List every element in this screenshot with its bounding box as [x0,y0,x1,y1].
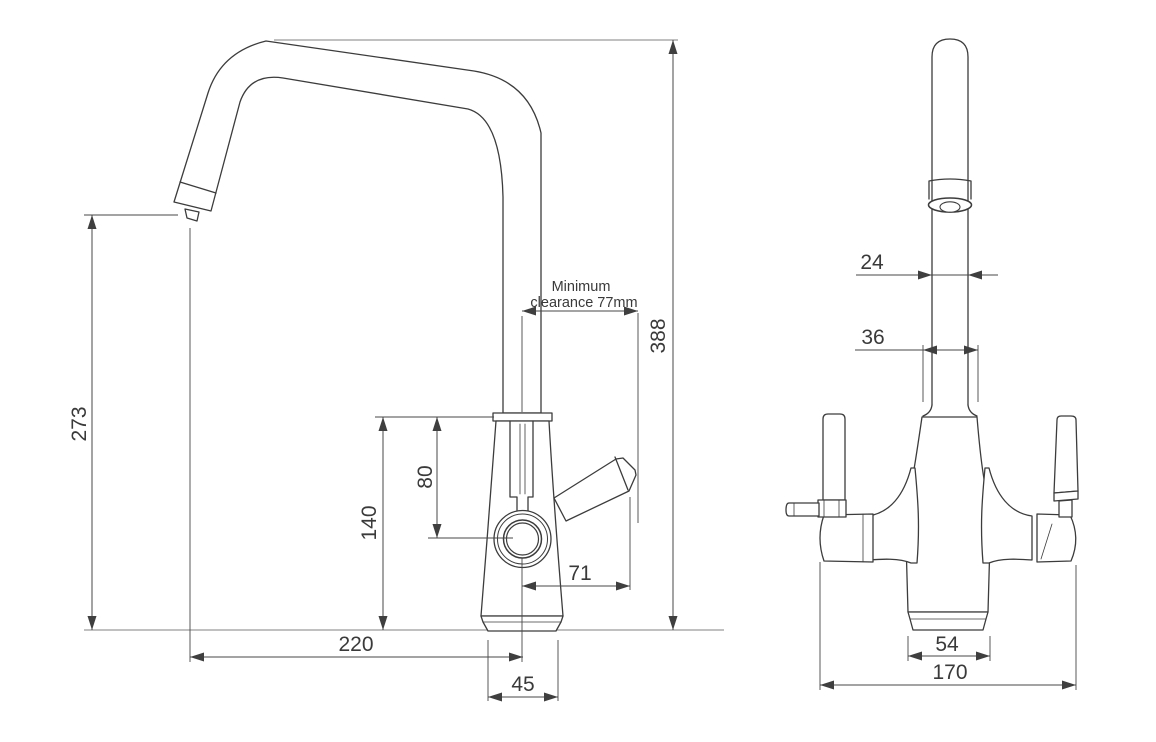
dial-outer-ring [494,511,551,568]
dim-54-label: 54 [935,633,959,656]
front-spout-flare [923,405,977,416]
front-left-arm [868,468,918,563]
dim-220-label: 220 [338,633,373,656]
front-left-valve-block [820,514,873,562]
technical-drawing: 273 388 Minimum clearance 77mm 140 [0,0,1156,742]
dim-45: 45 [488,640,558,702]
front-aerator-nozzle [940,202,960,212]
clearance-note-line1: Minimum [552,279,611,295]
clearance-note-line2: clearance 77mm [530,295,637,311]
front-right-stem [1059,500,1072,517]
dim-388-label: 388 [647,318,670,353]
front-view: 24 36 54 170 [786,39,1078,690]
dim-24: 24 [856,251,998,280]
spout-nozzle [185,209,199,221]
dim-273-label: 273 [68,406,91,441]
dim-80-label: 80 [414,465,437,488]
dim-140: 140 [358,417,494,630]
dim-220: 220 [190,633,523,662]
dim-45-label: 45 [511,673,534,696]
dim-36: 36 [855,326,978,402]
dim-36-label: 36 [861,326,884,349]
side-handle-lever [554,458,636,521]
front-left-side-lever [786,503,819,516]
front-right-lever [1054,416,1078,493]
front-right-lever-band [1054,491,1078,501]
dim-388: 388 [647,40,678,630]
front-left-collar [818,500,846,517]
front-right-arm [982,468,1032,563]
front-aerator-band [929,179,971,199]
dim-273: 273 [68,215,190,662]
front-base [908,612,988,630]
dim-140-label: 140 [358,505,381,540]
dim-24-label: 24 [860,251,884,274]
front-right-valve-block [1037,514,1076,562]
dim-54: 54 [908,633,990,661]
body-cap [493,413,552,421]
side-view: 273 388 Minimum clearance 77mm 140 [68,40,724,702]
drawing-page: 273 388 Minimum clearance 77mm 140 [0,0,1156,742]
front-left-lever [823,414,845,500]
dim-170-label: 170 [932,661,967,684]
spout-outline [174,41,541,413]
dim-71-label: 71 [568,562,591,585]
